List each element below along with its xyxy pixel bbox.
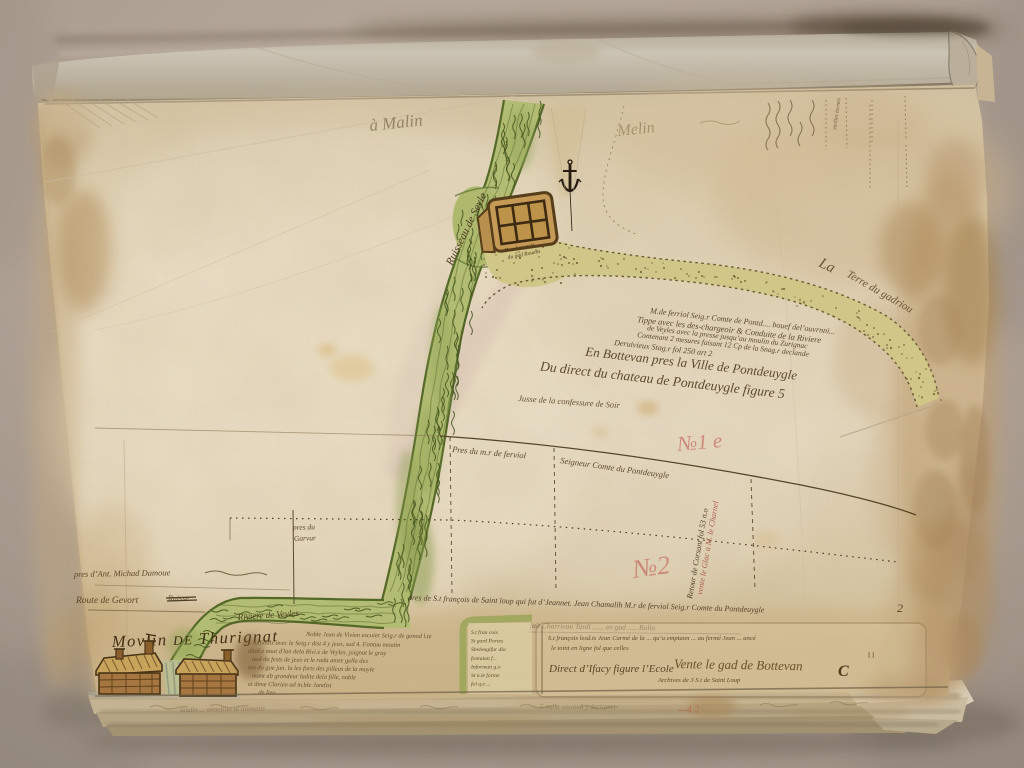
svg-text:C: C <box>838 663 849 680</box>
svg-text:Garvur: Garvur <box>294 533 316 543</box>
svg-text:№2: №2 <box>630 550 672 584</box>
svg-text:Archives de 3 S.t de Saint Lou: Archives de 3 S.t de Saint Loup <box>657 677 741 684</box>
svg-text:‖ ‖: ‖ ‖ <box>868 651 875 660</box>
svg-text:S.t fran cois: S.t fran cois <box>471 629 498 636</box>
svg-text:№1 e: №1 e <box>675 428 723 456</box>
svg-text:fontulan f...: fontulan f... <box>471 655 497 662</box>
svg-text:2: 2 <box>897 601 903 615</box>
svg-text:St gard Portes: St gard Portes <box>471 639 503 645</box>
svg-text:et dime Clarieu ad m.ble Jandi: et dime Clarieu ad m.ble Jandist <box>248 681 332 689</box>
svg-text:Sbelongifur dla: Sbelongifur dla <box>471 646 506 653</box>
svg-text:Route de Gevort: Route de Gevort <box>75 596 139 606</box>
svg-text:... de lieu ........: ... de lieu ........ <box>252 689 291 697</box>
svg-text:St n.le forme: St n.le forme <box>471 672 500 679</box>
svg-text:pres d’Ant. Michad Damoue: pres d’Ant. Michad Damoue <box>73 567 171 579</box>
svg-text:5 nulla vacandi y dartignri: 5 nulla vacandi y dartignri <box>540 703 615 711</box>
svg-text:Informati g.o: Informati g.o <box>470 663 501 670</box>
svg-text:laudin ... annofilio ut limmat: laudin ... annofilio ut limmatis <box>180 705 265 714</box>
svg-text:fol q.e ...: fol q.e ... <box>471 681 491 688</box>
svg-text:le toint en ligne fol que cell: le toint en ligne fol que celles <box>551 645 629 652</box>
svg-text:Direct d’Ifacy figure l’Ecole: Direct d’Ifacy figure l’Ecole <box>548 663 674 675</box>
svg-text:pres du: pres du <box>292 522 316 532</box>
svg-text:S.t françois lesd.ts Jean Carm: S.t françois lesd.ts Jean Carmé de la ..… <box>548 635 757 642</box>
svg-text:Vente le gad de Bottevan: Vente le gad de Bottevan <box>674 656 803 673</box>
svg-text:Ruisse: Ruisse <box>167 594 189 603</box>
